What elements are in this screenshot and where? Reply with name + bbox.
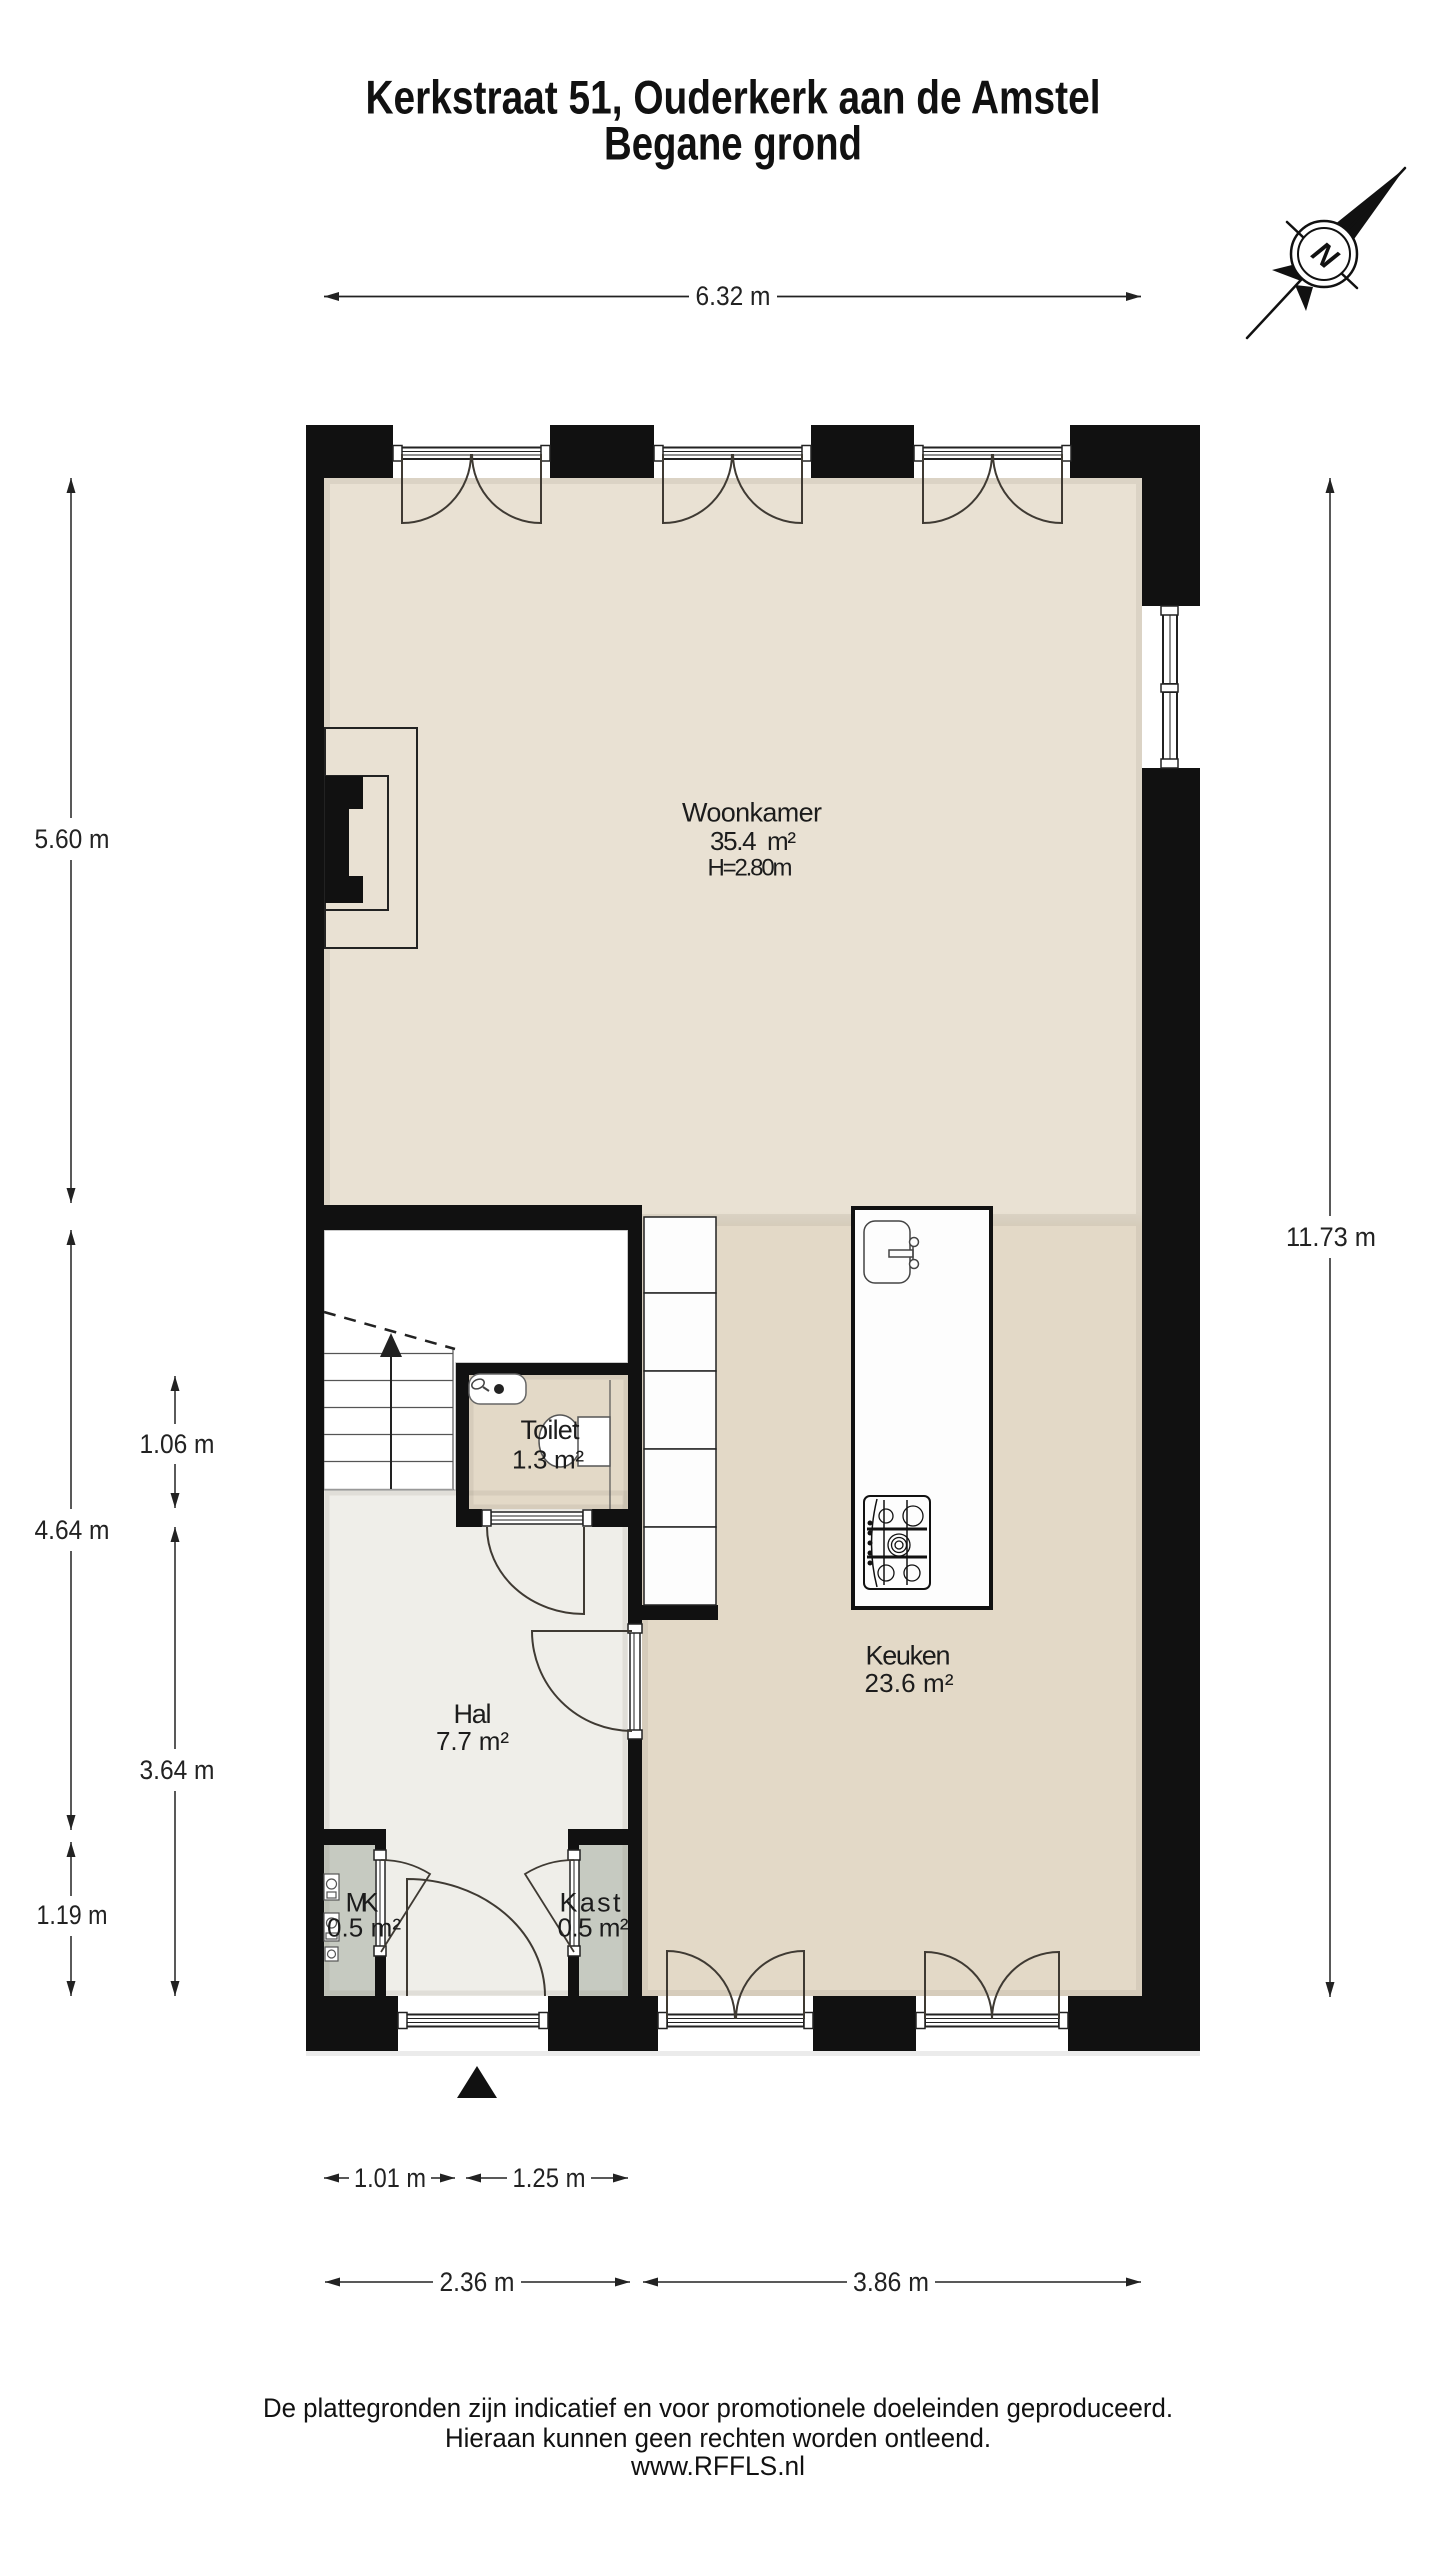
svg-text:www.RFFLS.nl: www.RFFLS.nl — [630, 2451, 805, 2481]
svg-text:1.25 m: 1.25 m — [513, 2163, 586, 2193]
svg-text:6.32 m: 6.32 m — [696, 281, 771, 311]
svg-text:23.6 m²: 23.6 m² — [865, 1668, 954, 1698]
svg-text:1.3 m²: 1.3 m² — [512, 1445, 584, 1475]
svg-text:2.36 m: 2.36 m — [440, 2267, 515, 2297]
svg-text:3.86 m: 3.86 m — [853, 2267, 929, 2297]
svg-text:1.01 m: 1.01 m — [354, 2163, 426, 2193]
svg-text:H=2.80m: H=2.80m — [708, 855, 793, 882]
svg-text:11.73 m: 11.73 m — [1286, 1222, 1376, 1252]
svg-text:Toilet: Toilet — [521, 1415, 580, 1445]
svg-text:0.5 m²: 0.5 m² — [558, 1913, 629, 1943]
svg-text:1.06 m: 1.06 m — [140, 1429, 215, 1459]
svg-text:Hal: Hal — [454, 1699, 492, 1729]
svg-text:Woonkamer: Woonkamer — [682, 798, 822, 828]
svg-text:5.60 m: 5.60 m — [35, 824, 110, 854]
svg-text:Keuken: Keuken — [866, 1641, 951, 1671]
svg-text:1.19 m: 1.19 m — [37, 1900, 108, 1930]
svg-text:4.64 m: 4.64 m — [35, 1515, 110, 1545]
svg-text:0.5 m²: 0.5 m² — [327, 1913, 401, 1943]
svg-text:3.64 m: 3.64 m — [140, 1755, 215, 1785]
svg-text:De plattegronden zijn indicati: De plattegronden zijn indicatief en voor… — [263, 2393, 1173, 2423]
svg-text:Begane grond: Begane grond — [604, 117, 862, 170]
svg-text:7.7 m²: 7.7 m² — [436, 1726, 509, 1756]
svg-text:35.4 m²: 35.4 m² — [710, 826, 796, 856]
svg-text:Hieraan kunnen geen rechten wo: Hieraan kunnen geen rechten worden ontle… — [445, 2423, 991, 2453]
